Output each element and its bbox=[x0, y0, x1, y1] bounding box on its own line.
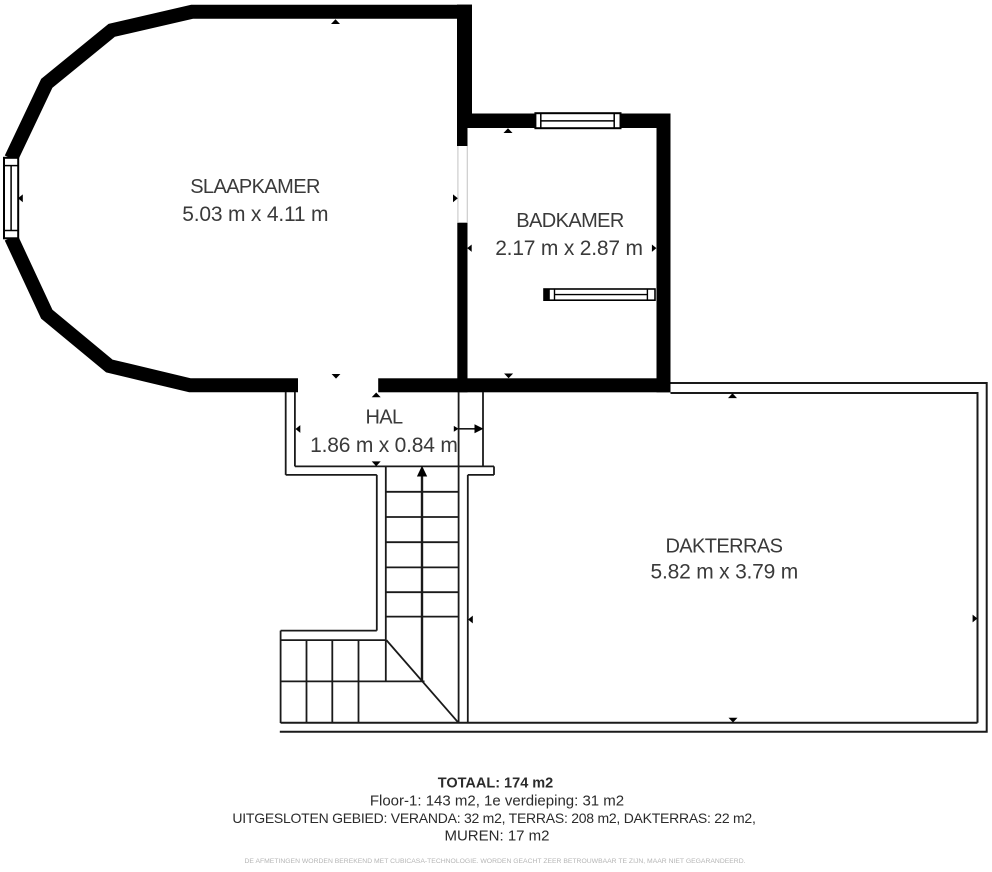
svg-text:5.82 m x 3.79 m: 5.82 m x 3.79 m bbox=[651, 561, 799, 584]
svg-text:UITGESLOTEN GEBIED: VERANDA: 3: UITGESLOTEN GEBIED: VERANDA: 32 m2, TERR… bbox=[232, 810, 755, 826]
svg-text:DE AFMETINGEN WORDEN BEREKEND: DE AFMETINGEN WORDEN BEREKEND MET CUBICA… bbox=[244, 858, 745, 865]
svg-text:DAKTERRAS: DAKTERRAS bbox=[665, 536, 782, 558]
svg-text:1.86 m x 0.84 m: 1.86 m x 0.84 m bbox=[310, 434, 458, 457]
svg-text:MUREN: 17 m2: MUREN: 17 m2 bbox=[444, 828, 549, 845]
svg-text:Floor-1: 143 m2, 1e verdieping: Floor-1: 143 m2, 1e verdieping: 31 m2 bbox=[370, 792, 624, 809]
svg-text:BADKAMER: BADKAMER bbox=[516, 210, 624, 232]
svg-text:5.03 m x 4.11 m: 5.03 m x 4.11 m bbox=[182, 203, 328, 226]
svg-text:SLAAPKAMER: SLAAPKAMER bbox=[190, 176, 320, 198]
svg-text:2.17 m x 2.87 m: 2.17 m x 2.87 m bbox=[495, 237, 643, 260]
svg-text:TOTAAL: 174 m2: TOTAAL: 174 m2 bbox=[438, 776, 554, 792]
svg-text:HAL: HAL bbox=[365, 407, 403, 429]
